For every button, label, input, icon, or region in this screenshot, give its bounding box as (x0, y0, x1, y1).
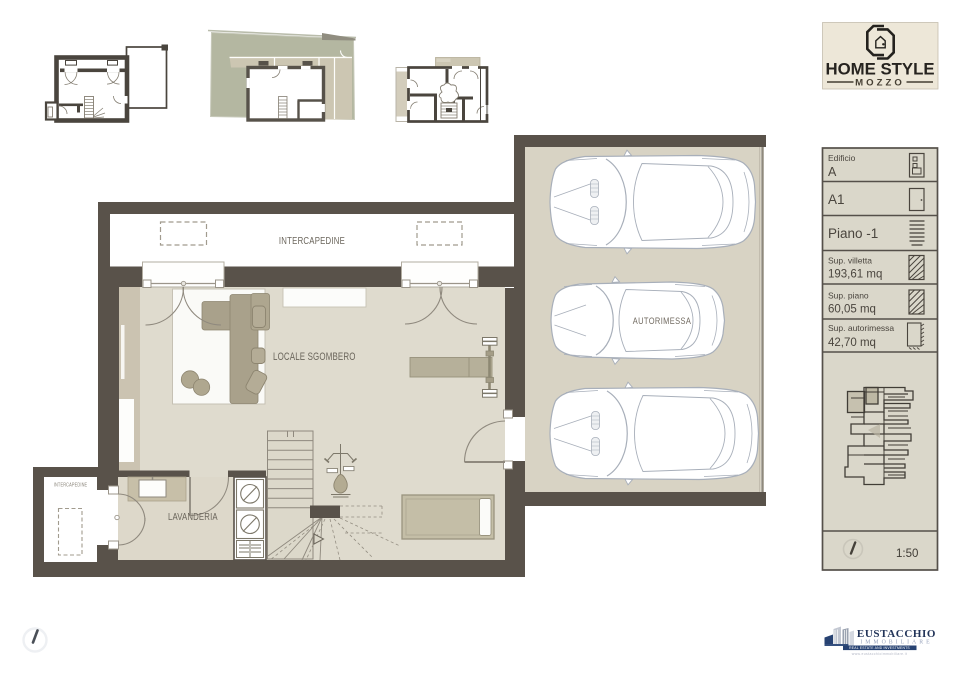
svg-text:1:50: 1:50 (896, 548, 918, 560)
svg-text:60,05 mq: 60,05 mq (828, 304, 876, 316)
svg-text:Edificio: Edificio (828, 153, 856, 163)
svg-text:Sup. villetta: Sup. villetta (828, 256, 872, 266)
svg-text:Sup. autorimessa: Sup. autorimessa (828, 323, 894, 333)
svg-text:www.eustacchioimmobiliare.it: www.eustacchioimmobiliare.it (852, 652, 907, 656)
svg-text:INTERCAPEDINE: INTERCAPEDINE (54, 482, 88, 488)
svg-text:Sup. piano: Sup. piano (828, 291, 869, 301)
svg-text:IMMOBILIARE: IMMOBILIARE (860, 640, 932, 646)
svg-text:42,70 mq: 42,70 mq (828, 337, 876, 349)
svg-text:193,61 mq: 193,61 mq (828, 269, 882, 281)
svg-text:A: A (828, 165, 837, 179)
svg-text:EUSTACCHIO: EUSTACCHIO (857, 628, 936, 640)
svg-text:INTERCAPEDINE: INTERCAPEDINE (279, 235, 345, 246)
svg-text:REAL ESTATE AND INVESTMENTS: REAL ESTATE AND INVESTMENTS (849, 646, 910, 650)
svg-text:Piano -1: Piano -1 (828, 226, 878, 241)
svg-text:HOME STYLE: HOME STYLE (825, 60, 934, 79)
svg-text:AUTORIMESSA: AUTORIMESSA (633, 315, 692, 326)
svg-text:LAVANDERIA: LAVANDERIA (168, 511, 218, 522)
svg-text:A1: A1 (828, 192, 845, 207)
svg-text:LOCALE SGOMBERO: LOCALE SGOMBERO (273, 351, 356, 362)
svg-text:MOZZO: MOZZO (855, 78, 905, 89)
